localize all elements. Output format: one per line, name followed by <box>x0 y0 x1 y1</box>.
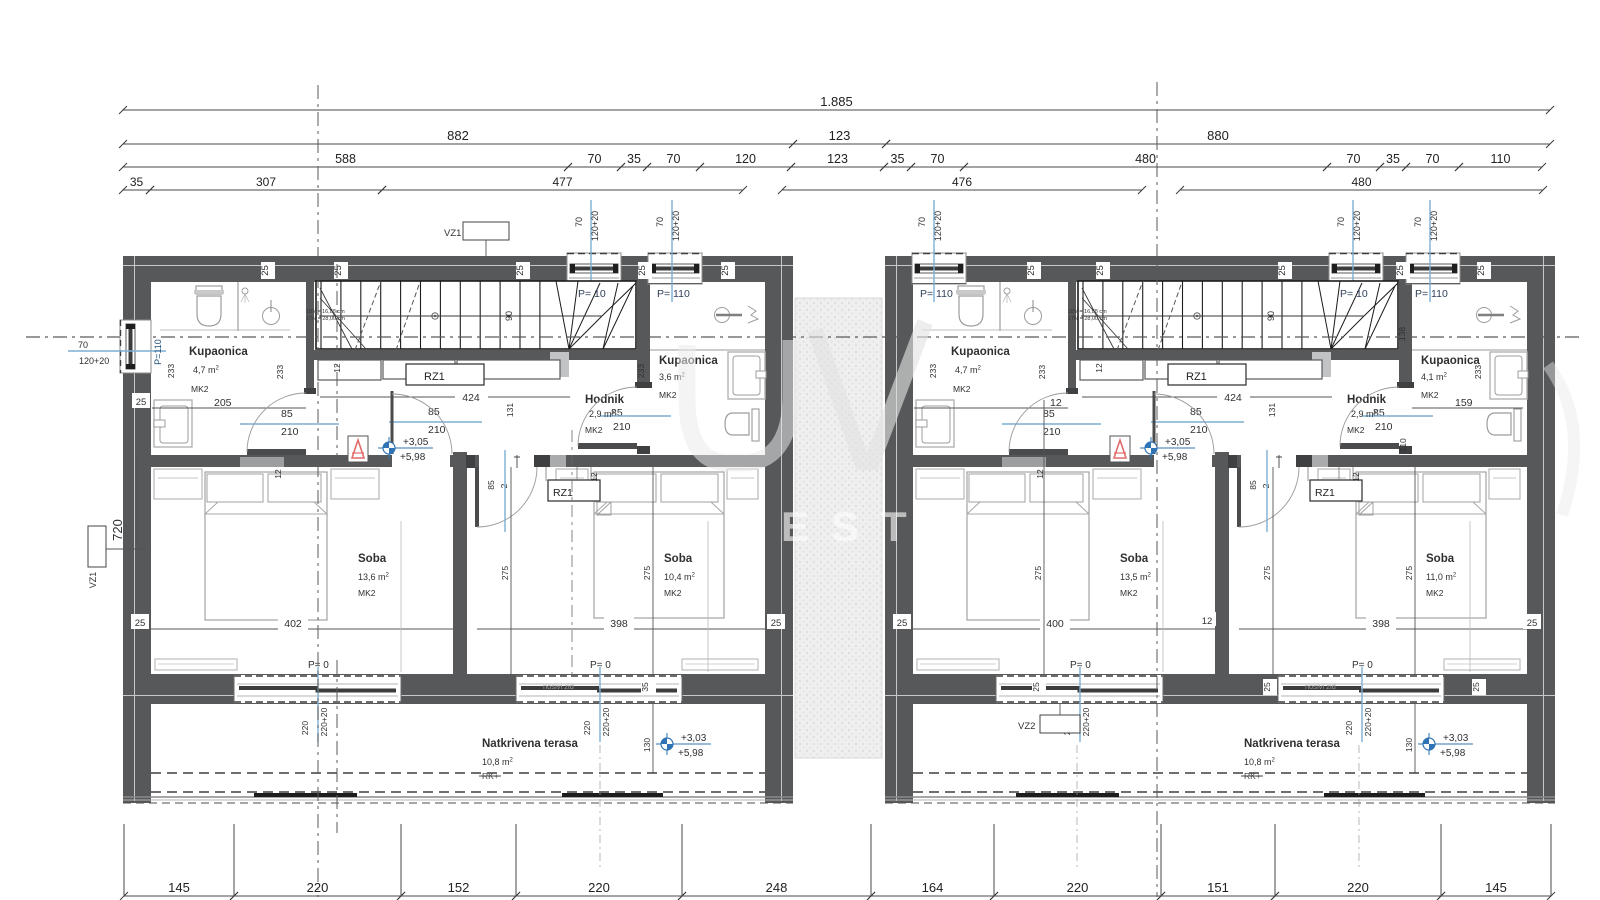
svg-text:220: 220 <box>582 721 592 735</box>
svg-text:85: 85 <box>486 480 496 490</box>
svg-text:70: 70 <box>574 217 584 227</box>
svg-text:480: 480 <box>1135 152 1156 166</box>
svg-text:85: 85 <box>281 408 293 420</box>
svg-text:307: 307 <box>256 175 276 189</box>
svg-text:2: 2 <box>499 483 509 488</box>
svg-text:110: 110 <box>1491 152 1511 166</box>
svg-text:P= 110: P= 110 <box>657 288 690 300</box>
svg-text:25: 25 <box>1262 682 1272 692</box>
svg-text:480: 480 <box>1351 175 1371 189</box>
svg-text:85: 85 <box>1043 408 1055 420</box>
svg-text:220+20: 220+20 <box>1081 707 1091 736</box>
svg-text:25: 25 <box>1095 265 1106 276</box>
svg-text:EST: EST <box>781 503 929 550</box>
svg-text:120+20: 120+20 <box>671 211 681 241</box>
svg-text:120: 120 <box>735 152 756 166</box>
svg-text:MK2: MK2 <box>1120 588 1138 598</box>
svg-text:25: 25 <box>1395 265 1406 276</box>
svg-text:476: 476 <box>952 175 972 189</box>
svg-text:477: 477 <box>552 175 572 189</box>
svg-text:70: 70 <box>917 217 927 227</box>
svg-text:Hodnik: Hodnik <box>585 394 625 406</box>
svg-text:70: 70 <box>655 217 665 227</box>
svg-text:P= 0: P= 0 <box>590 660 611 671</box>
svg-text:233: 233 <box>636 364 646 378</box>
svg-text:880: 880 <box>1207 128 1229 143</box>
svg-text:220: 220 <box>1344 721 1354 735</box>
svg-text:25: 25 <box>135 618 146 629</box>
svg-text:220+20: 220+20 <box>1363 707 1373 736</box>
svg-text:MK2: MK2 <box>1421 390 1439 400</box>
svg-text:720: 720 <box>110 519 125 541</box>
svg-text:70: 70 <box>588 152 602 166</box>
svg-text:130: 130 <box>642 738 652 752</box>
svg-text:+5,98: +5,98 <box>1440 748 1466 759</box>
svg-text:MK2: MK2 <box>191 384 209 394</box>
svg-text:12: 12 <box>1035 469 1045 479</box>
svg-text:+3,03: +3,03 <box>681 733 707 744</box>
svg-text:123: 123 <box>829 128 851 143</box>
svg-text:12: 12 <box>1351 472 1361 482</box>
svg-text:210: 210 <box>613 421 631 433</box>
svg-text:90: 90 <box>504 311 514 321</box>
svg-text:MK2: MK2 <box>664 588 682 598</box>
svg-text:205: 205 <box>214 397 232 409</box>
svg-text:P= 0: P= 0 <box>1070 660 1091 671</box>
svg-text:233: 233 <box>1037 365 1047 379</box>
svg-text:220: 220 <box>588 880 610 895</box>
svg-text:400: 400 <box>1046 618 1064 630</box>
svg-text:2: 2 <box>1261 483 1271 488</box>
svg-text:P= 10: P= 10 <box>1340 288 1368 300</box>
svg-text:123: 123 <box>827 152 848 166</box>
svg-text:588: 588 <box>335 152 356 166</box>
svg-text:424: 424 <box>462 392 480 404</box>
svg-text:70: 70 <box>1347 152 1361 166</box>
svg-text:25: 25 <box>1527 618 1538 629</box>
svg-text:164: 164 <box>922 880 944 895</box>
svg-text:210: 210 <box>1190 424 1208 436</box>
svg-text:MK2: MK2 <box>659 390 677 400</box>
svg-text:882: 882 <box>447 128 469 143</box>
svg-text:25: 25 <box>1277 265 1288 276</box>
svg-text:25: 25 <box>720 265 731 276</box>
svg-text:25: 25 <box>771 618 782 629</box>
svg-text:25: 25 <box>637 265 648 276</box>
svg-text:17N = 28,00 cm: 17N = 28,00 cm <box>306 316 345 322</box>
svg-text:MK2: MK2 <box>358 588 376 598</box>
svg-text:VZ1: VZ1 <box>444 228 461 239</box>
svg-text:233: 233 <box>1473 365 1483 379</box>
svg-text:35: 35 <box>627 152 641 166</box>
svg-text:12: 12 <box>1202 616 1213 627</box>
svg-text:P= 110: P= 110 <box>920 288 953 300</box>
svg-text:MK2: MK2 <box>1347 425 1365 435</box>
svg-text:12: 12 <box>1094 363 1104 373</box>
svg-text:nosivi zid: nosivi zid <box>543 682 574 691</box>
svg-text:131: 131 <box>1267 403 1277 417</box>
svg-text:210: 210 <box>281 426 299 438</box>
svg-text:70: 70 <box>931 152 945 166</box>
svg-text:+5,98: +5,98 <box>400 452 426 463</box>
svg-text:138: 138 <box>1397 327 1407 341</box>
svg-text:P= 10: P= 10 <box>578 288 606 300</box>
svg-text:10,8 m2: 10,8 m2 <box>1244 757 1276 767</box>
svg-text:90: 90 <box>1266 311 1276 321</box>
svg-text:145: 145 <box>1485 880 1507 895</box>
svg-text:120+20: 120+20 <box>933 211 943 241</box>
svg-text:25: 25 <box>1471 682 1481 692</box>
svg-text:Soba: Soba <box>1120 553 1149 565</box>
svg-text:Hodnik: Hodnik <box>1347 394 1387 406</box>
svg-text:70: 70 <box>1336 217 1346 227</box>
svg-text:18V = 16,88 cm: 18V = 16,88 cm <box>1068 309 1107 315</box>
svg-text:11,0 m2: 11,0 m2 <box>1426 572 1457 582</box>
svg-text:402: 402 <box>284 618 302 630</box>
svg-text:120+20: 120+20 <box>79 356 109 366</box>
svg-text:70: 70 <box>1413 217 1423 227</box>
svg-text:275: 275 <box>642 566 652 580</box>
svg-text:220: 220 <box>1347 880 1369 895</box>
svg-text:210: 210 <box>1375 421 1393 433</box>
svg-text:P= 110: P= 110 <box>1415 288 1448 300</box>
svg-text:MK2: MK2 <box>1426 588 1444 598</box>
svg-text:220: 220 <box>1067 880 1089 895</box>
svg-text:70: 70 <box>78 340 88 350</box>
svg-text:Soba: Soba <box>664 553 693 565</box>
svg-text:159: 159 <box>1455 397 1473 409</box>
svg-text:18V = 16,88 cm: 18V = 16,88 cm <box>306 309 345 315</box>
svg-text:RZ1: RZ1 <box>553 487 573 499</box>
svg-text:35: 35 <box>640 682 650 692</box>
svg-text:10,8 m2: 10,8 m2 <box>482 757 514 767</box>
svg-text:P= 0: P= 0 <box>308 660 329 671</box>
svg-text:25: 25 <box>1031 682 1041 692</box>
svg-text:70: 70 <box>1426 152 1440 166</box>
svg-text:1.885: 1.885 <box>820 94 853 109</box>
svg-text:25: 25 <box>515 265 526 276</box>
svg-text:233: 233 <box>275 365 285 379</box>
svg-text:Natkrivena terasa: Natkrivena terasa <box>1244 738 1340 750</box>
svg-text:Kupaonica: Kupaonica <box>1421 355 1480 367</box>
svg-text:VZ2: VZ2 <box>1018 721 1035 732</box>
svg-text:RZ1: RZ1 <box>1186 371 1207 383</box>
svg-text:RZ1: RZ1 <box>1315 487 1335 499</box>
svg-text:P=110: P=110 <box>153 339 163 365</box>
svg-text:+5,98: +5,98 <box>678 748 704 759</box>
svg-text:275: 275 <box>1262 566 1272 580</box>
svg-text:220+20: 220+20 <box>601 707 611 736</box>
svg-text:220: 220 <box>300 721 310 735</box>
svg-text:Kupaonica: Kupaonica <box>951 346 1010 358</box>
svg-text:398: 398 <box>1372 618 1390 630</box>
svg-text:RZ1: RZ1 <box>424 371 445 383</box>
svg-text:120+20: 120+20 <box>1429 211 1439 241</box>
svg-text:35: 35 <box>130 175 144 189</box>
svg-text:210: 210 <box>1043 426 1061 438</box>
svg-text:151: 151 <box>1207 880 1229 895</box>
svg-text:275: 275 <box>1404 566 1414 580</box>
svg-text:275: 275 <box>1033 566 1043 580</box>
svg-text:398: 398 <box>610 618 628 630</box>
svg-text:12: 12 <box>589 472 599 482</box>
svg-text:145: 145 <box>168 880 190 895</box>
svg-text:152: 152 <box>448 880 470 895</box>
svg-text:70: 70 <box>667 152 681 166</box>
svg-text:17N = 28,00 cm: 17N = 28,00 cm <box>1068 316 1107 322</box>
svg-text:13,6 m2: 13,6 m2 <box>358 572 390 582</box>
svg-text:131: 131 <box>505 403 515 417</box>
svg-text:424: 424 <box>1224 392 1242 404</box>
svg-text:VZ1: VZ1 <box>88 572 98 589</box>
svg-text:nosivi zid: nosivi zid <box>1305 682 1336 691</box>
svg-text:12: 12 <box>1050 397 1062 409</box>
svg-text:35: 35 <box>1386 152 1400 166</box>
svg-text:25: 25 <box>1026 265 1037 276</box>
svg-text:+3,05: +3,05 <box>1165 437 1191 448</box>
svg-text:25: 25 <box>897 618 908 629</box>
svg-text:220+20: 220+20 <box>319 707 329 736</box>
svg-text:25: 25 <box>136 397 147 408</box>
svg-text:35: 35 <box>891 152 905 166</box>
svg-text:+3,03: +3,03 <box>1443 733 1469 744</box>
svg-text:233: 233 <box>166 364 176 378</box>
svg-text:25: 25 <box>260 265 271 276</box>
svg-text:13,5 m2: 13,5 m2 <box>1120 572 1152 582</box>
svg-text:MK2: MK2 <box>953 384 971 394</box>
svg-text:+3,05: +3,05 <box>403 437 429 448</box>
svg-text:130: 130 <box>1404 738 1414 752</box>
svg-text:+5,98: +5,98 <box>1162 452 1188 463</box>
svg-text:120+20: 120+20 <box>590 211 600 241</box>
svg-text:85: 85 <box>1248 480 1258 490</box>
svg-text:233: 233 <box>928 364 938 378</box>
svg-text:MK2: MK2 <box>585 425 603 435</box>
svg-text:25: 25 <box>333 265 344 276</box>
svg-text:P= 0: P= 0 <box>1352 660 1373 671</box>
svg-text:Kupaonica: Kupaonica <box>189 346 248 358</box>
svg-text:10,4 m2: 10,4 m2 <box>664 572 696 582</box>
svg-text:12: 12 <box>273 469 283 479</box>
svg-text:275: 275 <box>500 566 510 580</box>
svg-text:248: 248 <box>766 880 788 895</box>
svg-text:Soba: Soba <box>1426 553 1455 565</box>
svg-text:25: 25 <box>1476 265 1487 276</box>
svg-text:Soba: Soba <box>358 553 387 565</box>
svg-text:Natkrivena terasa: Natkrivena terasa <box>482 738 578 750</box>
svg-text:210: 210 <box>428 424 446 436</box>
svg-text:120+20: 120+20 <box>1352 211 1362 241</box>
svg-text:110: 110 <box>1398 438 1408 452</box>
